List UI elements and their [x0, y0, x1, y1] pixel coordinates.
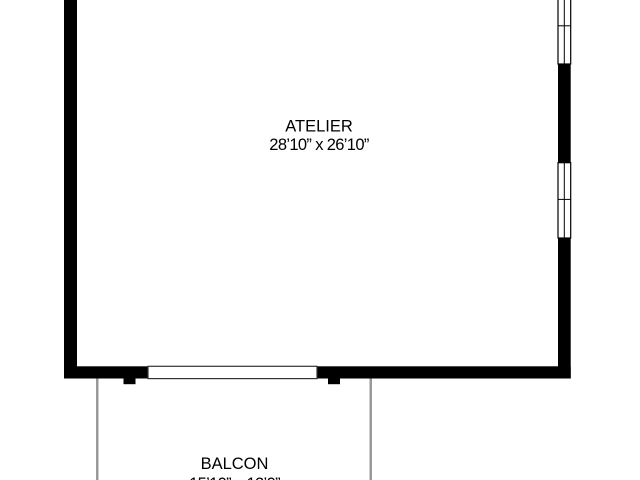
svg-text:BALCON: BALCON	[201, 455, 269, 473]
svg-text:28’10” x 26’10”: 28’10” x 26’10”	[269, 136, 369, 154]
svg-text:15’10” x 12’0”: 15’10” x 12’0”	[189, 475, 280, 480]
svg-text:ATELIER: ATELIER	[285, 117, 353, 135]
